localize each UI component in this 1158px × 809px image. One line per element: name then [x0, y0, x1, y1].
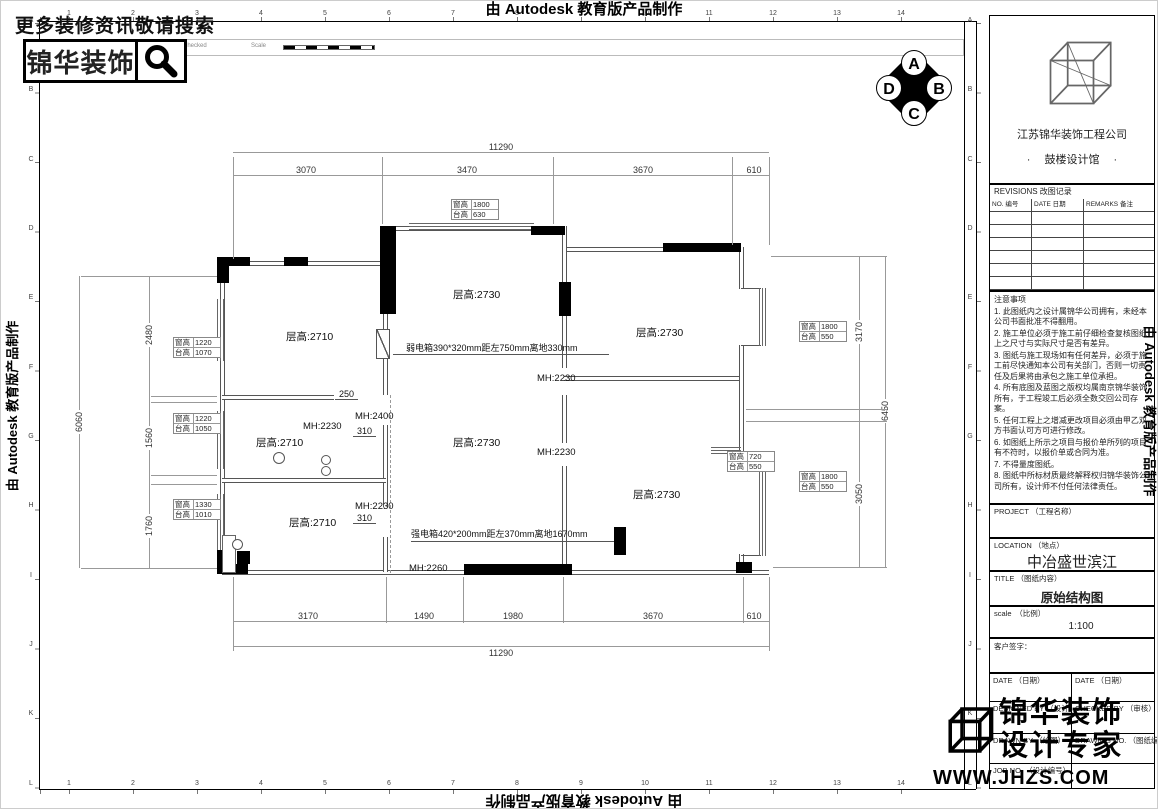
ruler-row: B — [964, 86, 976, 94]
dim-ext — [746, 421, 887, 422]
weak-current-box-symbol — [376, 329, 390, 359]
ruler-row: A — [964, 17, 976, 25]
column — [663, 243, 741, 252]
wt-value: 1010 — [194, 510, 220, 519]
door-height-label: MH:2400 — [355, 411, 394, 422]
column — [380, 226, 396, 314]
revisions-col-header: REMARKS 备注 — [1084, 199, 1154, 212]
wt-value: 1070 — [194, 348, 220, 357]
ruler-col: 6 — [381, 10, 397, 18]
dim-label: 3470 — [455, 165, 479, 175]
bay-wall — [741, 555, 761, 556]
revisions-col-header: DATE 日期 — [1032, 199, 1084, 212]
column — [222, 257, 250, 266]
dim-ext — [233, 577, 234, 651]
wt-label: 窗高 — [174, 500, 194, 510]
dim-ext — [771, 256, 887, 257]
column — [736, 562, 752, 573]
wt-label: 台高 — [800, 482, 820, 491]
dim-label: 11290 — [487, 648, 515, 658]
location-label: LOCATION （地点） — [994, 541, 1064, 550]
revisions-cell — [990, 225, 1032, 238]
revisions-cell — [1032, 264, 1084, 277]
door-height-label: MH:2260 — [409, 563, 448, 574]
dim-line — [233, 621, 769, 622]
dim-label: 3170 — [854, 320, 864, 344]
dim-label: 610 — [744, 611, 763, 621]
ruler-row: L — [25, 780, 37, 788]
watermark-url: WWW.JHZS.COM — [933, 767, 1109, 790]
location-value: 中冶盛世滨江 — [991, 551, 1153, 572]
strip-col-label: Scale — [251, 43, 266, 50]
room-height-label: 层高:2730 — [453, 437, 500, 449]
fixture-circle — [273, 452, 285, 464]
wt-label: 台高 — [174, 510, 194, 519]
project-label: PROJECT （工程名称） — [994, 507, 1076, 516]
note-item: 3. 图纸与施工现场如有任何差异，必须于施工前尽快通知本公司有关部门，否则一切责… — [994, 351, 1150, 383]
compass-letter-d: D — [883, 81, 895, 98]
wt-label: 台高 — [728, 462, 748, 471]
window-table: 窗高1800 台高550 — [799, 471, 847, 492]
wall — [383, 537, 388, 572]
ruler-row: E — [25, 294, 37, 302]
wall — [562, 466, 567, 572]
note-item: 4. 所有底图及蓝图之版权均属南京锦华装饰所有，于工程竣工后必须全数交回公司存案… — [994, 383, 1150, 415]
ruler-row: G — [25, 433, 37, 441]
fixture-circle — [232, 539, 243, 550]
ruler-col: 1 — [61, 780, 77, 788]
dim-label: 1560 — [144, 426, 154, 450]
window — [759, 460, 766, 556]
dim-ext — [563, 577, 564, 623]
ruler-row: C — [964, 156, 976, 164]
client-signature-label: 客户签字： — [994, 642, 1032, 651]
date-label: DATE （日期） — [993, 676, 1045, 685]
dim-ext — [386, 577, 387, 623]
wt-label: 窗高 — [728, 452, 748, 462]
room-height-label: 层高:2730 — [636, 327, 683, 339]
scale-bar — [283, 45, 375, 50]
revisions-cell — [990, 238, 1032, 251]
ruler-row: I — [964, 572, 976, 580]
drawing-title-label: TITLE （图纸内容） — [994, 574, 1062, 583]
note-item: 6. 如图纸上所示之项目与报价单所列的项目有不符时，以报价单或合同为准。 — [994, 438, 1150, 459]
fixture-block — [237, 551, 250, 564]
ruler-col: 7 — [445, 780, 461, 788]
company-name: 江苏锦华装饰工程公司 — [991, 126, 1153, 142]
wt-label: 台高 — [174, 348, 194, 357]
autodesk-banner-bottom: 由 Autodesk 教育版产品制作 — [459, 792, 709, 808]
dim-label: 6450 — [880, 399, 890, 423]
dim-ext — [81, 276, 217, 277]
ruler-row: K — [25, 710, 37, 718]
window — [409, 223, 534, 230]
revisions-cell — [1084, 251, 1154, 264]
ruler-col: 9 — [573, 780, 589, 788]
strong-current-box-note: 强电箱420*200mm距左370mm离地1670mm — [411, 529, 588, 539]
ruler-col: 11 — [701, 780, 717, 788]
ruler-row: H — [25, 502, 37, 510]
revisions-cell — [1032, 238, 1084, 251]
ruler-col: 14 — [893, 10, 909, 18]
wt-value: 720 — [748, 452, 774, 462]
revisions-cell — [1032, 225, 1084, 238]
autodesk-banner-left: 由 Autodesk 教育版产品制作 — [5, 281, 21, 531]
dim-ext — [151, 484, 217, 485]
notes-list: 注意事项 1. 此图纸内之设计属锦华公司拥有，未经本公司书面批准不得翻用。 2.… — [994, 295, 1150, 493]
scale-value: 1:100 — [1041, 621, 1121, 632]
leader-line — [411, 541, 614, 542]
ruler-col: 6 — [381, 780, 397, 788]
window-table: 窗高1800 台高630 — [451, 199, 499, 220]
compass-marker: A B C D — [872, 46, 956, 135]
room-height-label: 层高:2730 — [633, 489, 680, 501]
wall — [222, 395, 334, 400]
revisions-cell — [990, 251, 1032, 264]
grid-divider — [989, 763, 1155, 764]
wall — [564, 376, 741, 381]
wall — [739, 345, 744, 460]
bay-wall — [741, 345, 761, 346]
wall — [562, 395, 567, 443]
ruler-row: G — [964, 433, 976, 441]
dim-ext — [233, 157, 234, 259]
wt-label: 窗高 — [452, 200, 472, 210]
ruler-col: 4 — [253, 780, 269, 788]
window-table: 窗高1220 台高1050 — [173, 413, 221, 434]
dim-label: 1490 — [412, 611, 436, 621]
revisions-table: NO. 编号 DATE 日期 REMARKS 备注 — [990, 199, 1154, 290]
dim-label: 3670 — [631, 165, 655, 175]
revisions-cell — [990, 277, 1032, 290]
office-name: · 鼓楼设计馆 · — [991, 151, 1153, 167]
revisions-cell — [990, 264, 1032, 277]
ruler-col: 2 — [125, 780, 141, 788]
dim-ext — [81, 568, 217, 569]
ruler-ticks-left — [35, 21, 39, 789]
revisions-cell — [1084, 225, 1154, 238]
wt-label: 台高 — [452, 210, 472, 219]
frame-left-border — [39, 21, 40, 789]
room-height-label: 层高:2710 — [256, 437, 303, 449]
window-table: 窗高1800 台高550 — [799, 321, 847, 342]
wt-label: 窗高 — [174, 338, 194, 348]
ruler-ticks-right — [977, 21, 981, 789]
compass-letter-c: C — [908, 106, 920, 123]
small-dim: 250 — [335, 389, 358, 400]
revisions-col-header: NO. 编号 — [990, 199, 1032, 212]
watermark-logo-cube — [935, 699, 995, 766]
dim-line — [233, 175, 769, 176]
notes-title: 注意事项 — [994, 295, 1150, 306]
ruler-row: D — [964, 225, 976, 233]
bay-wall — [741, 288, 761, 289]
door-height-label: MH:2230 — [303, 421, 342, 432]
wall — [222, 478, 386, 483]
dim-ext — [382, 157, 383, 224]
brand-name: 锦华装饰 — [26, 42, 138, 80]
column — [531, 226, 565, 235]
dim-ext — [743, 577, 744, 623]
revisions-cell — [1084, 212, 1154, 225]
dim-label: 1760 — [144, 514, 154, 538]
wt-value: 1050 — [194, 424, 220, 433]
window-table: 窗高1330 台高1010 — [173, 499, 221, 520]
ruler-col: 12 — [765, 10, 781, 18]
compass-letter-b: B — [933, 81, 945, 98]
door-height-label: MH:2230 — [537, 373, 576, 384]
window-table: 窗高1220 台高1070 — [173, 337, 221, 358]
dim-ext — [769, 157, 770, 245]
revisions-cell — [1032, 212, 1084, 225]
note-item: 2. 施工单位必须于施工前仔细检查复核图纸上之尺寸与实际尺寸是否有差异。 — [994, 329, 1150, 350]
door-height-label: MH:2230 — [537, 447, 576, 458]
wt-label: 窗高 — [800, 472, 820, 482]
ruler-row: D — [25, 225, 37, 233]
ruler-row: B — [25, 86, 37, 94]
dim-label: 2480 — [144, 323, 154, 347]
wt-value: 630 — [472, 210, 498, 219]
ruler-row: J — [25, 641, 37, 649]
fixture-circle — [321, 455, 331, 465]
dim-ext — [773, 567, 887, 568]
note-item: 7. 不得量度图纸。 — [994, 460, 1150, 471]
strong-current-box-symbol — [614, 527, 626, 555]
revisions-title: REVISIONS 改图记录 — [994, 187, 1072, 196]
wall — [739, 247, 744, 289]
ruler-col: 8 — [509, 780, 525, 788]
room-height-label: 层高:2710 — [286, 331, 333, 343]
wt-value: 1800 — [820, 472, 846, 482]
magnifier-icon — [138, 42, 184, 80]
ruler-col: 12 — [765, 780, 781, 788]
dim-label: 11290 — [487, 142, 515, 152]
dim-ext — [553, 157, 554, 224]
leader-line — [393, 354, 609, 355]
autodesk-banner-top: 由 Autodesk 教育版产品制作 — [459, 2, 709, 18]
ruler-col: 5 — [317, 780, 333, 788]
revisions-cell — [1032, 277, 1084, 290]
revisions-cell — [1032, 251, 1084, 264]
wall — [383, 425, 388, 507]
dim-line — [859, 256, 860, 567]
wt-value: 1220 — [194, 414, 220, 424]
ruler-col: 14 — [893, 780, 909, 788]
dim-ext — [151, 396, 217, 397]
ruler-row: F — [25, 364, 37, 372]
dim-ext — [463, 577, 464, 623]
ruler-col: 3 — [189, 780, 205, 788]
search-hint-text: 更多装修资讯敬请搜索 — [15, 11, 215, 38]
ruler-row: I — [25, 572, 37, 580]
wt-value: 550 — [820, 482, 846, 491]
wt-value: 550 — [748, 462, 774, 471]
wt-label: 窗高 — [174, 414, 194, 424]
wt-label: 台高 — [174, 424, 194, 433]
dim-label: 6060 — [74, 410, 84, 434]
wt-label: 窗高 — [800, 322, 820, 332]
wt-value: 550 — [820, 332, 846, 341]
window — [759, 288, 766, 346]
dim-line — [233, 646, 769, 647]
dim-ext — [769, 577, 770, 651]
fixture-circle — [321, 466, 331, 476]
wt-label: 台高 — [800, 332, 820, 341]
dim-ext — [746, 409, 887, 410]
room-height-label: 层高:2730 — [453, 289, 500, 301]
scale-label: scale （比例） — [994, 609, 1045, 618]
company-logo-cube — [1029, 27, 1115, 124]
wt-value: 1330 — [194, 500, 220, 510]
drawing-title-value: 原始结构图 — [991, 587, 1153, 606]
ruler-col: 13 — [829, 10, 845, 18]
compass-letter-a: A — [908, 56, 920, 73]
dim-ext — [151, 402, 217, 403]
date-label: DATE （日期） — [1075, 676, 1127, 685]
ruler-col: 4 — [253, 10, 269, 18]
dim-line — [233, 152, 769, 153]
wt-value: 1800 — [472, 200, 498, 210]
note-item: 1. 此图纸内之设计属锦华公司拥有，未经本公司书面批准不得翻用。 — [994, 307, 1150, 328]
dim-ext — [732, 157, 733, 245]
small-dim: 310 — [353, 513, 376, 524]
dim-ext — [151, 475, 217, 476]
note-item: 8. 图纸中所标材质最终解释权归锦华装饰公司所有，设计师不付任何法律责任。 — [994, 471, 1150, 492]
dim-label: 3050 — [854, 482, 864, 506]
wt-value: 1800 — [820, 322, 846, 332]
ruler-row: C — [25, 156, 37, 164]
wt-value: 1220 — [194, 338, 220, 348]
ruler-col: 13 — [829, 780, 845, 788]
revisions-cell — [990, 212, 1032, 225]
watermark-line1: 锦华装饰 — [999, 698, 1123, 729]
dim-label: 1980 — [501, 611, 525, 621]
revisions-cell — [1084, 277, 1154, 290]
revisions-cell — [1084, 238, 1154, 251]
dim-label: 3670 — [641, 611, 665, 621]
column — [284, 257, 308, 266]
cad-sheet: 1 2 3 4 5 6 7 8 9 10 11 12 13 14 1 2 3 4… — [0, 0, 1158, 809]
revisions-cell — [1084, 264, 1154, 277]
ruler-row: F — [964, 364, 976, 372]
frame-right-border-inner — [964, 21, 965, 789]
ruler-col: 10 — [637, 780, 653, 788]
dim-label: 3170 — [296, 611, 320, 621]
room-height-label: 层高:2710 — [289, 517, 336, 529]
weak-current-box-note: 弱电箱390*320mm距左750mm离地330mm — [406, 343, 578, 353]
brand-banner: 锦华装饰 — [23, 39, 187, 83]
column — [559, 282, 571, 316]
door-height-label: MH:2230 — [355, 501, 394, 512]
watermark-line2: 设计专家 — [999, 731, 1123, 762]
ruler-row: E — [964, 294, 976, 302]
column — [464, 564, 572, 575]
ruler-col: 5 — [317, 10, 333, 18]
ruler-row: H — [964, 502, 976, 510]
ruler-row: J — [964, 641, 976, 649]
note-item: 5. 任何工程上之增减更改项目必须由甲乙双方书面认可方可进行修改。 — [994, 416, 1150, 437]
small-dim: 310 — [353, 426, 376, 437]
dim-label: 610 — [744, 165, 763, 175]
dim-label: 3070 — [294, 165, 318, 175]
window-table: 窗高720 台高550 — [727, 451, 775, 472]
